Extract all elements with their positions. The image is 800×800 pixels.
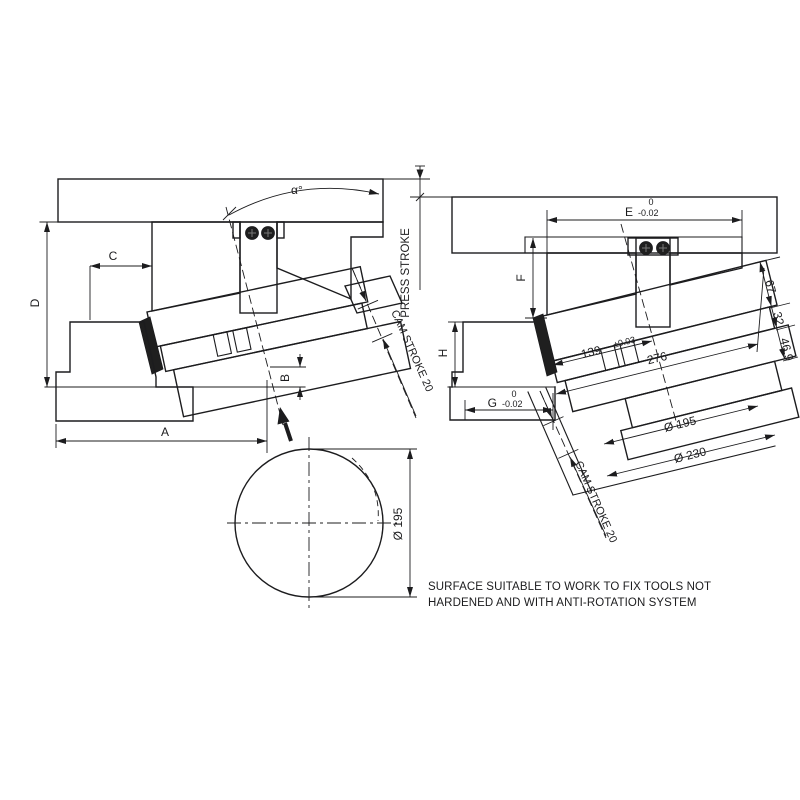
- dim-g-tol-lower: -0.02: [502, 399, 523, 409]
- dim-e-tol-upper: 0: [648, 197, 653, 207]
- dim-139-label: 139: [580, 343, 603, 362]
- dim-b-label: B: [278, 374, 292, 382]
- bottom-view-linework: [227, 437, 397, 609]
- dia-195-label: Ø 195: [662, 413, 697, 435]
- right-view: E 0 -0.02 F H G 0 -0.02 139 ±0.03 2: [436, 197, 800, 545]
- dim-276-label: 276: [646, 349, 669, 368]
- dim-32-label: 32: [770, 310, 787, 327]
- dim-d-label: D: [28, 298, 42, 307]
- bottom-dia-195-label: Ø 195: [391, 507, 405, 540]
- note-line-2: HARDENED AND WITH ANTI-ROTATION SYSTEM: [428, 597, 697, 609]
- dim-a-label: A: [161, 425, 169, 439]
- left-view: D C A B α° PRESS: [28, 166, 452, 453]
- dim-g-tol-upper: 0: [511, 389, 516, 399]
- right-view-dimensions: E 0 -0.02 F H G 0 -0.02 139 ±0.03 2: [436, 197, 798, 545]
- cam-stroke-label-left: CAM STROKE 20: [388, 308, 435, 393]
- dim-g-label: G: [488, 396, 497, 410]
- dim-67-label: 67: [762, 278, 779, 295]
- press-stroke-label: PRESS STROKE: [400, 228, 412, 318]
- angle-alpha-label: α°: [291, 183, 303, 197]
- dim-h-label: H: [436, 349, 450, 358]
- surface-note: SURFACE SUITABLE TO WORK TO FIX TOOLS NO…: [428, 581, 711, 609]
- note-line-1: SURFACE SUITABLE TO WORK TO FIX TOOLS NO…: [428, 581, 711, 593]
- dim-f-label: F: [514, 274, 528, 281]
- bottom-view: Ø 195: [227, 437, 417, 609]
- technical-drawing-page: D C A B α° PRESS: [0, 0, 800, 800]
- dim-c-label: C: [109, 249, 118, 263]
- technical-drawing: D C A B α° PRESS: [0, 0, 800, 800]
- cam-stroke-label-right: CAM STROKE 20: [572, 459, 619, 544]
- dim-e-tol-lower: -0.02: [638, 208, 659, 218]
- dim-469-label: 46.9: [777, 336, 796, 362]
- dim-e-label: E: [625, 205, 633, 219]
